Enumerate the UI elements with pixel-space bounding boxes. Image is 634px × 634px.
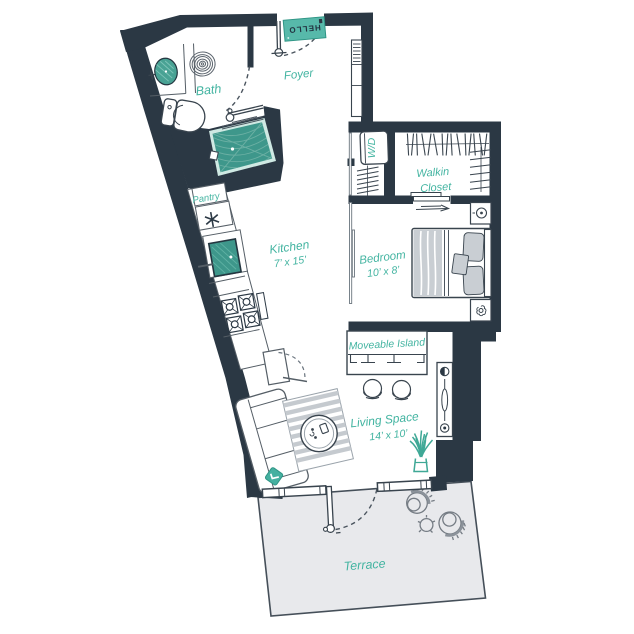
- svg-text:Terrace: Terrace: [343, 557, 386, 574]
- svg-text:Walkin: Walkin: [416, 166, 450, 180]
- svg-text:W/D: W/D: [366, 137, 378, 158]
- svg-text:Closet: Closet: [420, 181, 453, 195]
- svg-text:Bath: Bath: [195, 82, 222, 99]
